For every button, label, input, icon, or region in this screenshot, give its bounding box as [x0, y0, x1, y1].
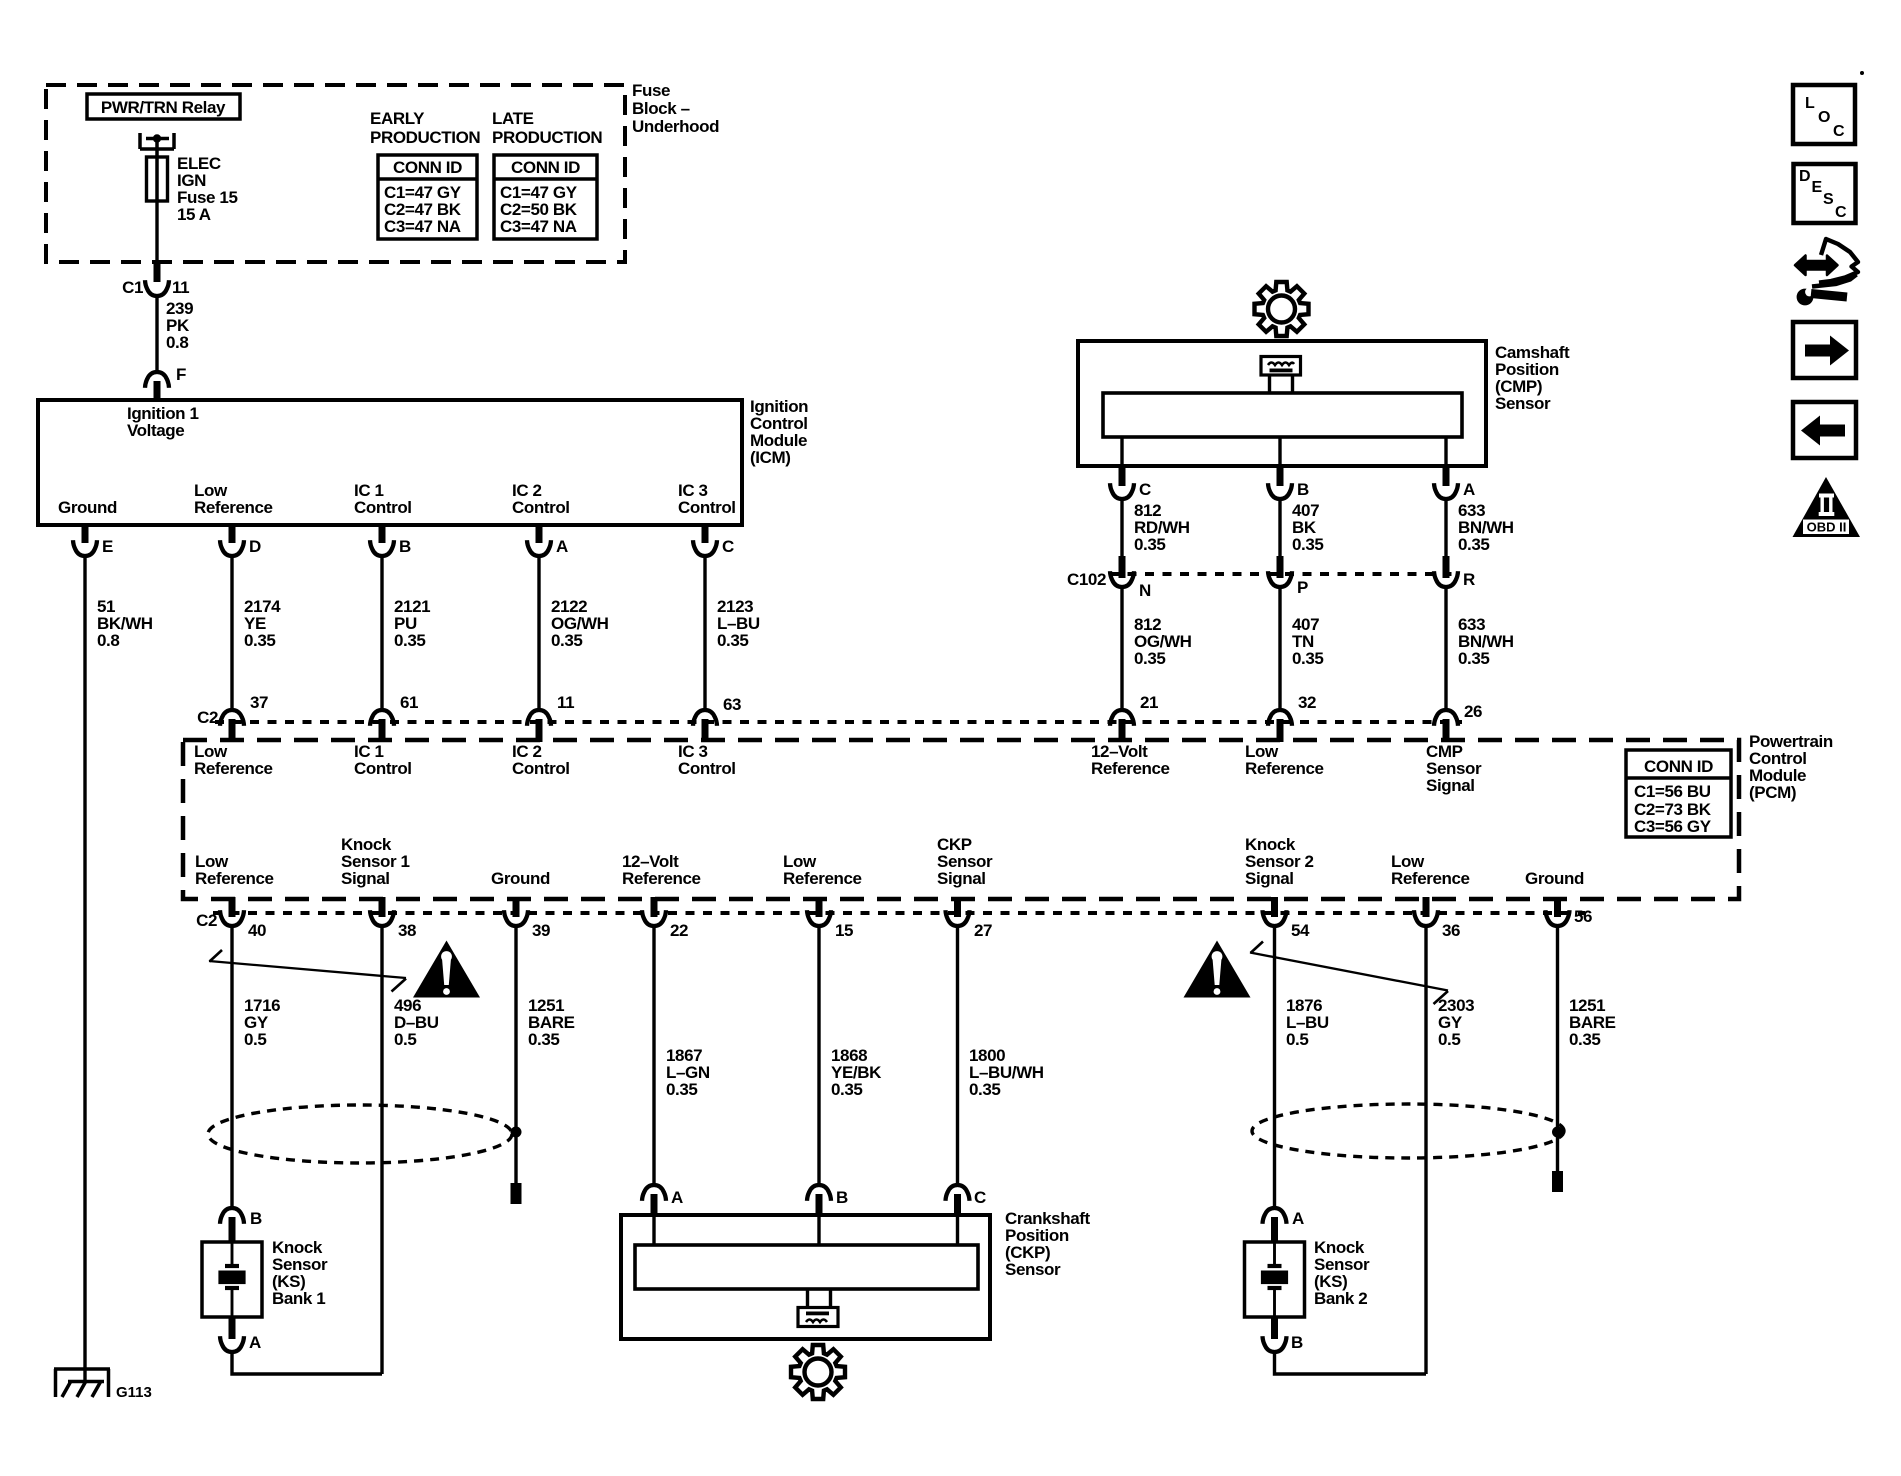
svg-text:0.35: 0.35 [969, 1080, 1001, 1099]
svg-text:A: A [671, 1188, 683, 1207]
svg-text:Reference: Reference [194, 759, 273, 778]
svg-text:B: B [836, 1188, 848, 1207]
svg-text:15 A: 15 A [177, 205, 211, 224]
svg-text:LATE: LATE [492, 109, 534, 128]
svg-text:56: 56 [1574, 907, 1592, 926]
svg-text:N: N [1139, 581, 1151, 600]
svg-text:11: 11 [172, 278, 189, 297]
svg-text:C3=47 NA: C3=47 NA [384, 217, 461, 236]
svg-text:Signal: Signal [341, 869, 390, 888]
svg-text:Sensor: Sensor [1495, 394, 1551, 413]
svg-text:L: L [1805, 95, 1815, 112]
svg-text:C3=56 GY: C3=56 GY [1634, 817, 1712, 836]
svg-text:D: D [1799, 168, 1811, 185]
svg-text:C2: C2 [197, 708, 218, 727]
svg-text:(ICM): (ICM) [750, 448, 790, 467]
svg-text:0.35: 0.35 [1134, 649, 1166, 668]
svg-text:OBD II: OBD II [1807, 520, 1847, 535]
svg-text:Sensor: Sensor [1005, 1260, 1061, 1279]
svg-text:0.5: 0.5 [1286, 1030, 1308, 1049]
svg-text:0.8: 0.8 [97, 631, 119, 650]
svg-text:0.35: 0.35 [666, 1080, 698, 1099]
svg-text:0.35: 0.35 [1134, 535, 1166, 554]
svg-text:0.35: 0.35 [717, 631, 749, 650]
svg-text:C102: C102 [1067, 570, 1106, 589]
svg-text:Reference: Reference [622, 869, 701, 888]
svg-text:Reference: Reference [1091, 759, 1170, 778]
svg-text:0.35: 0.35 [244, 631, 276, 650]
svg-text:Ground: Ground [58, 498, 117, 517]
svg-text:0.35: 0.35 [528, 1030, 560, 1049]
svg-text:E: E [1812, 179, 1823, 196]
svg-text:0.35: 0.35 [831, 1080, 863, 1099]
svg-text:0.8: 0.8 [166, 333, 188, 352]
svg-text:38: 38 [398, 921, 416, 940]
svg-text:Reference: Reference [783, 869, 862, 888]
svg-text:Signal: Signal [937, 869, 986, 888]
svg-text:CONN ID: CONN ID [511, 158, 580, 177]
svg-text:Underhood: Underhood [632, 117, 719, 136]
svg-text:40: 40 [248, 921, 266, 940]
svg-text:C: C [974, 1188, 986, 1207]
svg-text:C: C [1833, 123, 1845, 140]
svg-text:27: 27 [974, 921, 992, 940]
svg-text:Ground: Ground [491, 869, 550, 888]
svg-text:0.35: 0.35 [1458, 649, 1490, 668]
svg-text:Reference: Reference [195, 869, 274, 888]
svg-text:B: B [399, 537, 411, 556]
svg-text:C1=56 BU: C1=56 BU [1634, 782, 1711, 801]
svg-text:PRODUCTION: PRODUCTION [492, 128, 602, 147]
svg-text:Control: Control [678, 498, 736, 517]
svg-text:C1: C1 [122, 278, 143, 297]
svg-text:0.5: 0.5 [244, 1030, 266, 1049]
svg-text:Signal: Signal [1426, 776, 1475, 795]
svg-text:R: R [1463, 570, 1475, 589]
svg-text:S: S [1823, 191, 1834, 208]
svg-text:Block –: Block – [632, 99, 690, 118]
svg-text:B: B [1297, 480, 1309, 499]
svg-text:0.35: 0.35 [551, 631, 583, 650]
svg-text:D: D [249, 537, 261, 556]
svg-text:EARLY: EARLY [370, 109, 425, 128]
svg-text:0.5: 0.5 [1438, 1030, 1460, 1049]
svg-text:63: 63 [723, 695, 741, 714]
svg-text:A: A [1463, 480, 1475, 499]
svg-text:G113: G113 [116, 1384, 152, 1401]
svg-text:0.5: 0.5 [394, 1030, 416, 1049]
svg-text:Control: Control [512, 759, 570, 778]
svg-text:0.35: 0.35 [1292, 649, 1324, 668]
svg-text:54: 54 [1291, 921, 1310, 940]
svg-text:PRODUCTION: PRODUCTION [370, 128, 480, 147]
svg-text:C: C [722, 537, 734, 556]
svg-text:A: A [556, 537, 568, 556]
svg-text:Control: Control [354, 759, 412, 778]
svg-text:0.35: 0.35 [394, 631, 426, 650]
svg-text:Reference: Reference [1245, 759, 1324, 778]
svg-text:Control: Control [354, 498, 412, 517]
svg-text:C: C [1139, 480, 1151, 499]
svg-text:C: C [1835, 204, 1847, 221]
svg-text:C2: C2 [196, 911, 217, 930]
svg-text:Signal: Signal [1245, 869, 1294, 888]
svg-text:B: B [250, 1209, 262, 1228]
svg-text:61: 61 [400, 693, 418, 712]
svg-text:E: E [102, 537, 113, 556]
svg-text:PWR/TRN Relay: PWR/TRN Relay [101, 98, 226, 117]
svg-text:0.35: 0.35 [1292, 535, 1324, 554]
svg-text:15: 15 [835, 921, 853, 940]
svg-text:CONN ID: CONN ID [393, 158, 462, 177]
svg-text:0.35: 0.35 [1458, 535, 1490, 554]
svg-text:26: 26 [1464, 702, 1482, 721]
svg-text:Control: Control [678, 759, 736, 778]
svg-text:Bank 2: Bank 2 [1314, 1289, 1367, 1308]
svg-text:Fuse: Fuse [632, 81, 670, 100]
svg-text:Voltage: Voltage [127, 421, 184, 440]
svg-text:39: 39 [532, 921, 550, 940]
svg-text:Ground: Ground [1525, 869, 1584, 888]
svg-text:36: 36 [1442, 921, 1460, 940]
svg-text:CONN ID: CONN ID [1644, 757, 1713, 776]
svg-text:22: 22 [670, 921, 688, 940]
svg-text:Reference: Reference [1391, 869, 1470, 888]
svg-text:B: B [1291, 1333, 1303, 1352]
svg-text:Reference: Reference [194, 498, 273, 517]
svg-text:A: A [249, 1333, 261, 1352]
svg-text:O: O [1818, 109, 1830, 126]
svg-text:Bank 1: Bank 1 [272, 1289, 325, 1308]
svg-text:11: 11 [557, 693, 574, 712]
svg-text:21: 21 [1140, 693, 1158, 712]
svg-text:0.35: 0.35 [1569, 1030, 1601, 1049]
svg-text:C3=47 NA: C3=47 NA [500, 217, 577, 236]
svg-text:Control: Control [512, 498, 570, 517]
svg-text:A: A [1292, 1209, 1304, 1228]
svg-text:37: 37 [250, 693, 268, 712]
svg-text:(PCM): (PCM) [1749, 783, 1796, 802]
svg-text:F: F [176, 365, 186, 384]
svg-text:P: P [1297, 578, 1308, 597]
svg-text:32: 32 [1298, 693, 1316, 712]
